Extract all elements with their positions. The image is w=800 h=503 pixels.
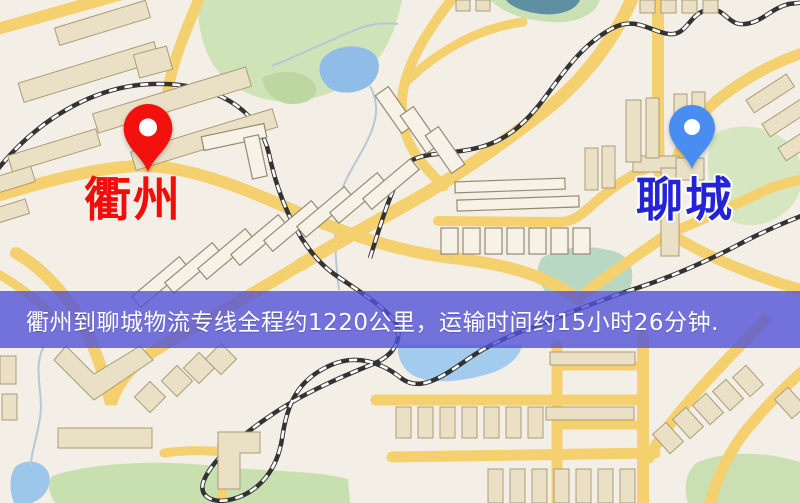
map-canvas: 衢州 聊城 衢州到聊城物流专线全程约1220公里，运输时间约15小时26分钟. (0, 0, 800, 503)
origin-pin-shape (124, 104, 173, 172)
destination-pin-icon (667, 104, 717, 170)
destination-city-label: 聊城 (636, 177, 734, 224)
destination-pin[interactable] (667, 104, 717, 174)
route-banner-text: 衢州到聊城物流专线全程约1220公里，运输时间约15小时26分钟. (26, 303, 719, 337)
origin-city-label: 衢州 (84, 177, 182, 224)
destination-pin-hole (684, 119, 700, 135)
origin-pin-icon (122, 103, 174, 173)
origin-pin[interactable] (122, 103, 174, 177)
route-banner: 衢州到聊城物流专线全程约1220公里，运输时间约15小时26分钟. (0, 291, 800, 348)
destination-pin-shape (669, 105, 715, 169)
origin-pin-hole (139, 118, 157, 136)
basemap-graphic (0, 0, 800, 503)
